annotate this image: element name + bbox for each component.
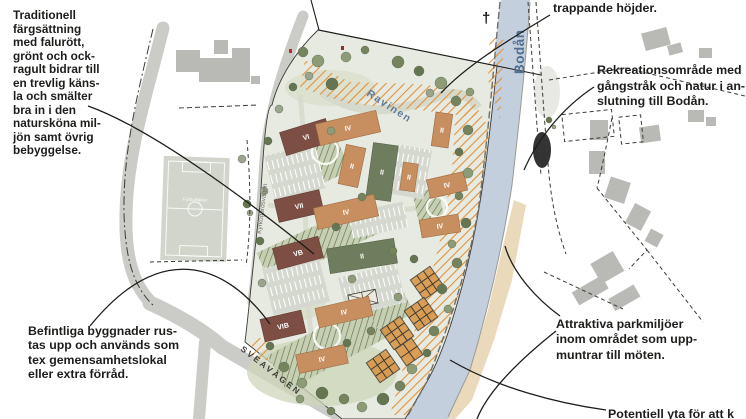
annotation-rekreation: Rekreationsområde med gångstråk och natu… (597, 63, 745, 110)
marker-red (289, 49, 292, 53)
annotation-attraktiva: Attraktiva parkmiljöer inom området som … (556, 317, 697, 363)
annotation-traditionell: Traditionell färgsättning med falurött, … (13, 9, 135, 158)
floodplain (534, 66, 560, 118)
football-field: Fotbollsplan (160, 156, 230, 262)
site-plan-page: Fotbollsplan (0, 0, 746, 419)
annotation-potentiell: Potentiell yta för att k (608, 407, 734, 419)
marker-red-2 (341, 46, 344, 50)
football-field-label: Fotbollsplan (183, 197, 208, 203)
church-icon: † (482, 10, 490, 27)
annotation-trappande: trappande höjder. (553, 1, 657, 16)
annotation-befintliga: Befintliga byggnader rus- tas upp och an… (28, 324, 179, 381)
